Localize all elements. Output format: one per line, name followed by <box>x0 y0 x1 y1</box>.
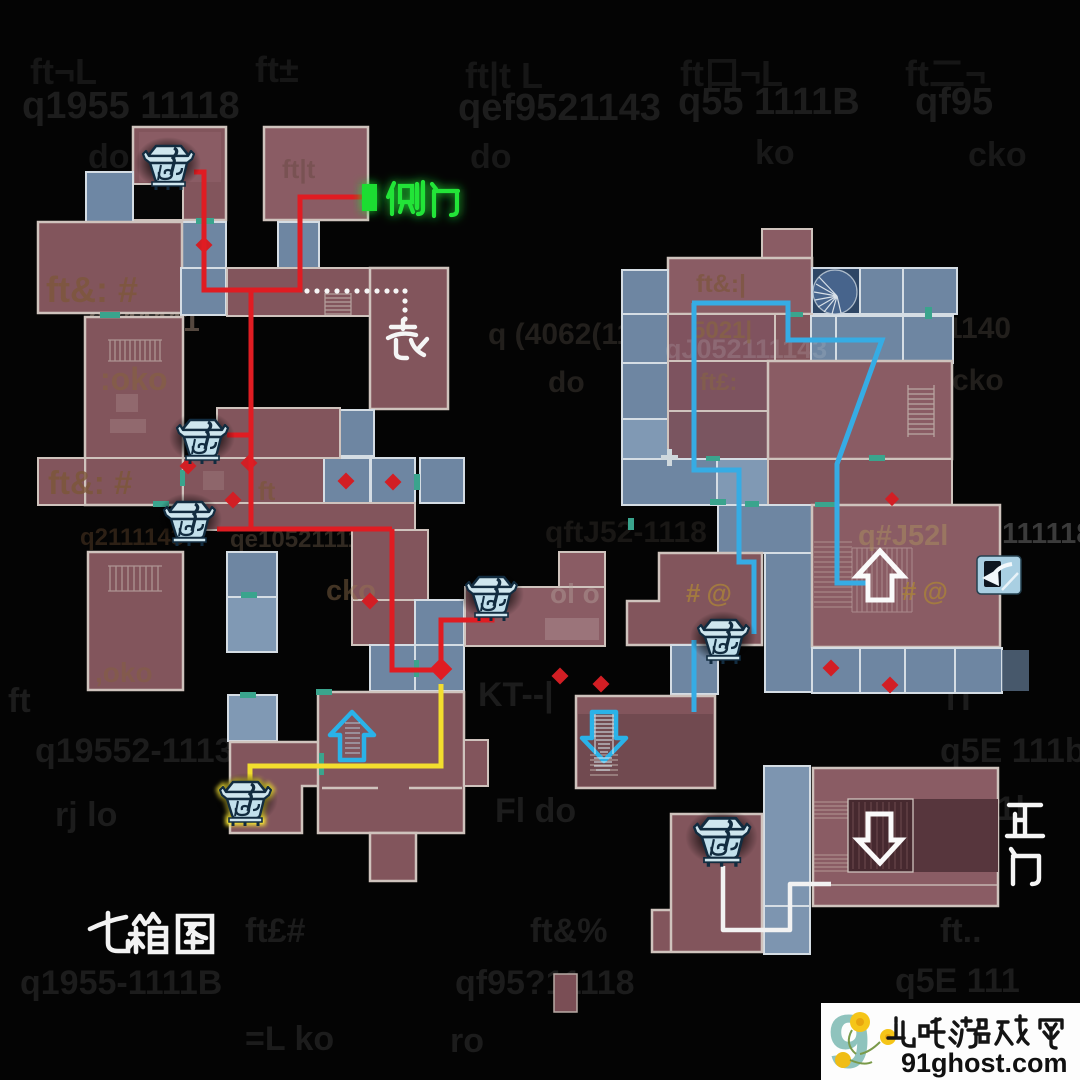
svg-text:qef9521143: qef9521143 <box>458 87 661 129</box>
svg-text:91ghost.com: 91ghost.com <box>901 1048 1068 1078</box>
svg-text:ft&%: ft&% <box>530 912 607 950</box>
svg-text:ft..: ft.. <box>940 912 982 950</box>
svg-text:cko: cko <box>952 364 1004 397</box>
svg-text:ft&:|: ft&:| <box>696 270 746 298</box>
svg-text:ft£#: ft£# <box>245 912 306 950</box>
svg-text:ft: ft <box>8 682 31 720</box>
svg-text:ft&: #: ft&: # <box>48 464 132 501</box>
svg-text:ft|t: ft|t <box>282 154 316 184</box>
svg-text:Fl do: Fl do <box>495 792 576 830</box>
svg-text:q#J52l: q#J52l <box>858 520 948 552</box>
svg-text:cko: cko <box>968 136 1027 174</box>
svg-text:ft£:: ft£: <box>700 369 737 396</box>
svg-text:qf95: qf95 <box>915 81 993 123</box>
svg-text:rj lo: rj lo <box>55 796 117 834</box>
svg-text:5021|: 5021| <box>692 317 752 344</box>
svg-text:ro: ro <box>450 1022 484 1060</box>
svg-text:=L ko: =L ko <box>245 1020 334 1058</box>
svg-text:#@: #@ <box>686 578 738 608</box>
svg-text:do: do <box>470 138 512 176</box>
svg-text:ol o: ol o <box>550 578 600 609</box>
svg-text:qftJ52-1118: qftJ52-1118 <box>545 516 707 549</box>
svg-text:#@: #@ <box>902 576 954 606</box>
svg-text:q1955-1111B: q1955-1111B <box>20 964 222 1002</box>
svg-text:q55 1111B: q55 1111B <box>678 81 860 123</box>
svg-text:ft&: #: ft&: # <box>46 269 138 310</box>
svg-text:q5E 111: q5E 111 <box>895 962 1020 1000</box>
svg-text:ft: ft <box>258 476 276 506</box>
svg-text::oko: :oko <box>100 361 168 397</box>
svg-text:q19552-1113: q19552-1113 <box>35 732 234 770</box>
svg-text:do: do <box>548 366 585 399</box>
svg-text:,oko: ,oko <box>95 657 153 688</box>
svg-text:111118: 111118 <box>1002 518 1080 550</box>
svg-text:KT--|: KT--| <box>478 676 554 714</box>
svg-text:q1955 11118: q1955 11118 <box>22 85 240 127</box>
svg-text:ko: ko <box>755 134 795 172</box>
svg-text:do: do <box>88 138 130 176</box>
svg-text:q5E 111b: q5E 111b <box>940 732 1080 770</box>
svg-text:qf95?11118: qf95?11118 <box>455 964 635 1002</box>
svg-text:ft±: ft± <box>255 49 299 90</box>
